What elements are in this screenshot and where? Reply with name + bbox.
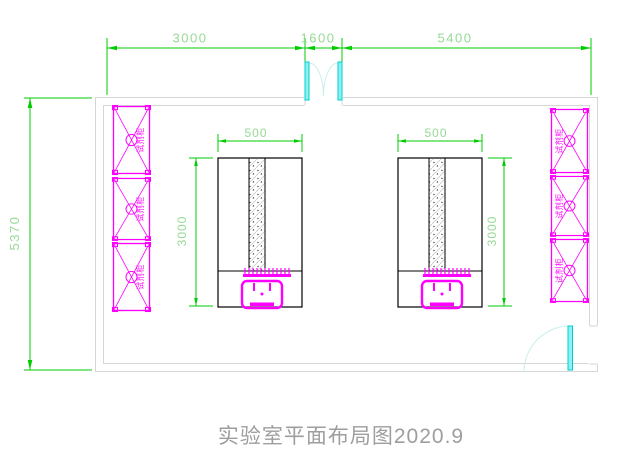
top-dimension-chain: 3000 1600 5400 (107, 31, 591, 96)
door-swing-arc (524, 326, 570, 372)
cabinet-label: 试剂柜 (554, 258, 564, 284)
bench-width-dimension: 500 (398, 126, 482, 152)
wall-outer-line (96, 98, 598, 372)
left-dimension: 5370 (7, 98, 92, 370)
cabinet: 试剂柜 (113, 178, 151, 241)
dim-label-1600: 1600 (301, 31, 336, 46)
drain-icon (441, 293, 444, 296)
bench-depth-dimension: 3000 (485, 158, 512, 306)
cabinet-label: 试剂柜 (135, 127, 145, 153)
cabinet: 试剂柜 (113, 242, 151, 311)
lab-bench-2: 500 3000 (398, 126, 512, 308)
cabinet: 试剂柜 (113, 105, 151, 174)
dim-label-5400: 5400 (438, 31, 473, 46)
cabinet-column-right: 试剂柜 试剂柜 试剂柜 (551, 109, 589, 303)
door-bottom-right (524, 326, 573, 372)
cabinet-label: 试剂柜 (135, 196, 145, 222)
cabinet-label: 试剂柜 (135, 264, 145, 290)
cabinet-label: 试剂柜 (554, 193, 564, 219)
dim-label-500: 500 (244, 126, 267, 140)
door-leaf-left (305, 62, 309, 100)
room-walls (96, 96, 599, 372)
bench-center-strip (249, 158, 265, 271)
dim-label-3000: 3000 (485, 216, 499, 247)
lab-bench-1: 500 3000 (175, 126, 302, 308)
door-leaf (568, 326, 573, 370)
cabinet: 试剂柜 (551, 109, 589, 174)
cabinet-label: 试剂柜 (554, 128, 564, 154)
dim-label-5370: 5370 (7, 216, 22, 251)
dim-label-3000: 3000 (173, 31, 208, 46)
door-swing-arc (309, 63, 324, 96)
drawing-title: 实验室平面布局图2020.9 (218, 425, 464, 448)
dim-label-3000: 3000 (175, 216, 189, 247)
cabinet-column-left: 试剂柜 试剂柜 试剂柜 (113, 105, 151, 311)
drain-icon (261, 293, 264, 296)
door-swing-arc (324, 63, 339, 96)
door-opening-top (304, 96, 343, 107)
dim-label-500: 500 (424, 126, 447, 140)
bench-depth-dimension: 3000 (175, 158, 213, 306)
cabinet: 试剂柜 (551, 176, 589, 237)
floor-plan-svg: 3000 1600 5400 5370 试剂柜 试剂柜 试 (0, 0, 619, 469)
door-opening-right (589, 326, 599, 365)
bench-width-dimension: 500 (218, 126, 302, 152)
cad-drawing-canvas: 3000 1600 5400 5370 试剂柜 试剂柜 试 (0, 0, 619, 469)
double-door-top (305, 62, 342, 100)
bench-center-strip (429, 158, 445, 271)
door-leaf-right (338, 62, 342, 100)
cabinet: 试剂柜 (551, 239, 589, 303)
